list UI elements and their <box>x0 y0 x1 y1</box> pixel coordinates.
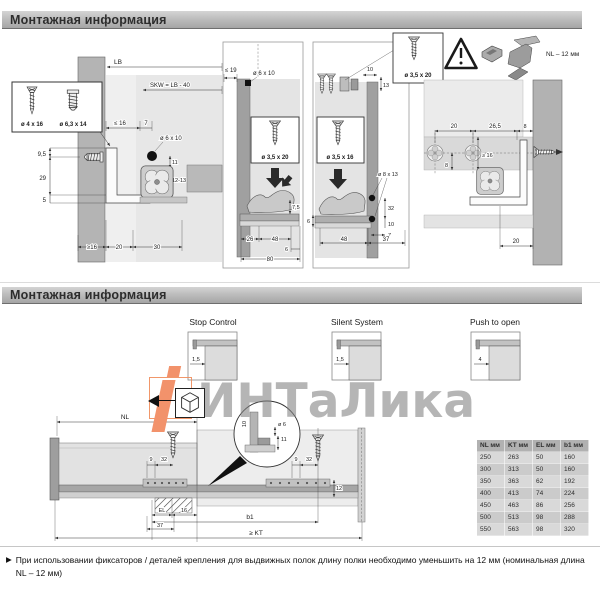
shelf-mount-drawing: 20 26,5 8 8 ≥ 16 20 <box>424 80 563 265</box>
table-row: 250 263 50 160 <box>477 452 589 464</box>
dim-8v-r: 8 <box>445 163 448 169</box>
dim-8-r: 8 <box>523 124 526 130</box>
dim-12-13: 12-13 <box>172 178 186 184</box>
table-cell: 224 <box>561 488 589 500</box>
screw-p1-label: ø 3,5 x 20 <box>261 155 289 161</box>
dim-5: 5 <box>43 198 47 204</box>
dim-20: 20 <box>116 245 123 251</box>
table-cell: 250 <box>477 452 505 464</box>
table-cell: 313 <box>505 464 533 476</box>
dim-d6x10-left: ø 6 x 10 <box>160 136 182 142</box>
table-row: 550 563 98 320 <box>477 524 589 536</box>
dim-20-r: 20 <box>451 124 458 130</box>
dim-48-p1: 48 <box>272 237 279 243</box>
dim-265-r: 26,5 <box>489 124 501 130</box>
table-cell: 98 <box>533 524 561 536</box>
table-cell: 463 <box>505 500 533 512</box>
table-row: 350 363 62 192 <box>477 476 589 488</box>
dim-nl: NL <box>121 414 130 421</box>
table-cell: 160 <box>561 452 589 464</box>
dim-9-front: 9 <box>149 457 152 463</box>
silent-system-label: Silent System <box>331 317 383 327</box>
footnote: ▶ При использовании фиксаторов / деталей… <box>6 554 592 580</box>
direction-arrow-icon <box>148 395 159 407</box>
dim-29: 29 <box>39 176 46 182</box>
dim-6-p2: 6 <box>307 219 310 225</box>
table-header-cell: EL мм <box>533 440 561 452</box>
section-separator <box>0 282 600 283</box>
dim-20b-r: 20 <box>513 239 520 245</box>
table-row: 500 513 98 288 <box>477 512 589 524</box>
screw1-label: ø 4 x 16 <box>21 122 44 128</box>
table-cell: 413 <box>505 488 533 500</box>
section2-header-bar: Монтажная информация <box>2 287 582 304</box>
table-cell: 500 <box>477 512 505 524</box>
table-cell: 256 <box>561 500 589 512</box>
dim-32-rear: 32 <box>306 457 312 463</box>
table-cell: 300 <box>477 464 505 476</box>
table-cell: 563 <box>505 524 533 536</box>
table-cell: 74 <box>533 488 561 500</box>
table-cell: 400 <box>477 488 505 500</box>
assembly-diagram-top: LB SKW = LB - 40 ≤ 16 7 ø 6 x 10 11 12-1… <box>0 30 600 282</box>
section1-header-bar: Монтажная информация <box>2 11 582 29</box>
table-cell: 263 <box>505 452 533 464</box>
dim-75: 7,5 <box>292 205 300 211</box>
silent-system-diagram: Silent System 1,5 <box>331 317 383 380</box>
dim-37-p2: 37 <box>383 237 390 243</box>
dim-9-rear: 9 <box>294 457 297 463</box>
cube-icon <box>176 389 204 417</box>
stop-control-dim: 1,5 <box>192 357 200 363</box>
table-cell: 513 <box>505 512 533 524</box>
dim-12: 12 <box>336 486 342 492</box>
table-cell: 160 <box>561 464 589 476</box>
dim-el: EL <box>159 508 166 514</box>
dim-lb: LB <box>114 59 122 66</box>
table-header-cell: b1 мм <box>561 440 589 452</box>
dim-b1: b1 <box>246 514 254 521</box>
dim-32-front: 32 <box>161 457 167 463</box>
pullout-shelf-drawing: NL 9 32 9 32 12 EL 16 b1 37 <box>50 401 365 542</box>
table-cell: 363 <box>505 476 533 488</box>
table-header-cell: KT мм <box>505 440 533 452</box>
dim-32-p2: 32 <box>388 206 394 212</box>
table-cell: 98 <box>533 512 561 524</box>
dim-ge16-r: ≥ 16 <box>482 153 493 159</box>
note-separator <box>0 546 600 547</box>
dim-le19: ≤ 19 <box>225 68 237 74</box>
table-cell: 550 <box>477 524 505 536</box>
table-row: 450 463 86 256 <box>477 500 589 512</box>
stop-control-diagram: Stop Control 1,5 <box>188 317 237 380</box>
installation-sheet-page: Монтажная информация <box>0 0 600 600</box>
push-to-open-dim: 4 <box>478 357 481 363</box>
dim-d6x10-p1: ø 6 x 10 <box>253 71 275 77</box>
table-cell: 62 <box>533 476 561 488</box>
dim-kt: ≥ KT <box>249 530 263 537</box>
shelf-clip-icon <box>482 46 502 62</box>
insert-direction-box <box>175 388 205 418</box>
dim-10-p2: 10 <box>367 67 373 73</box>
dimensions-table: NL мм KT мм EL мм b1 мм 250 263 50 160 3… <box>477 440 589 536</box>
footnote-bullet-icon: ▶ <box>6 555 12 580</box>
detail-dim-11: 11 <box>281 437 287 443</box>
dim-ge16: ≥16 <box>87 245 98 251</box>
screw2-label: ø 6,3 x 14 <box>59 122 87 128</box>
dim-48-p2: 48 <box>341 237 348 243</box>
stop-control-label: Stop Control <box>189 317 236 327</box>
dim-16: 16 <box>181 508 187 514</box>
detail-dim-10: 10 <box>242 421 248 427</box>
dim-80: 80 <box>267 257 274 263</box>
dim-le16: ≤ 16 <box>114 121 126 127</box>
direction-arrow-line <box>158 400 175 401</box>
screw-spec-box-2: ø 3,5 x 20 <box>393 33 443 83</box>
table-cell: 288 <box>561 512 589 524</box>
dim-26: 26 <box>247 237 254 243</box>
dim-10b-p2: 10 <box>388 222 394 228</box>
dim-11: 11 <box>172 160 178 166</box>
table-cell: 192 <box>561 476 589 488</box>
section1-title: Монтажная информация <box>10 13 167 27</box>
table-cell: 320 <box>561 524 589 536</box>
footnote-text: При использовании фиксаторов / деталей к… <box>16 554 592 580</box>
screw-p2-label: ø 3,5 x 16 <box>326 155 354 161</box>
silent-system-dim: 1,5 <box>336 357 344 363</box>
table-cell: 50 <box>533 464 561 476</box>
warning-triangle-icon <box>446 39 477 68</box>
dim-nl12: NL – 12 мм <box>546 51 580 58</box>
dim-d8x13: ø 8 x 13 <box>378 172 398 178</box>
table-cell: 50 <box>533 452 561 464</box>
table-row: 300 313 50 160 <box>477 464 589 476</box>
table-header-row: NL мм KT мм EL мм b1 мм <box>477 440 589 452</box>
screw-tr-label: ø 3,5 x 20 <box>404 73 432 79</box>
dim-37: 37 <box>157 523 163 529</box>
dim-30: 30 <box>154 245 161 251</box>
push-to-open-label: Push to open <box>470 317 520 327</box>
dim-13: 13 <box>383 83 389 89</box>
table-cell: 450 <box>477 500 505 512</box>
dim-6-p1: 6 <box>285 247 288 253</box>
dim-95: 9,5 <box>38 152 47 158</box>
detail-dim-6: ø 6 <box>278 422 286 428</box>
push-to-open-diagram: Push to open 4 <box>470 317 520 380</box>
table-header-cell: NL мм <box>477 440 505 452</box>
dim-skw: SKW = LB - 40 <box>150 83 191 89</box>
table-cell: 86 <box>533 500 561 512</box>
section2-title: Монтажная информация <box>10 288 167 302</box>
front-bracket-icon <box>508 36 540 80</box>
table-cell: 350 <box>477 476 505 488</box>
table-row: 400 413 74 224 <box>477 488 589 500</box>
drawer-mount-diagram-1: ≤ 19 ø 6 x 10 ø 3,5 x 20 7,5 26 48 <box>223 42 303 268</box>
